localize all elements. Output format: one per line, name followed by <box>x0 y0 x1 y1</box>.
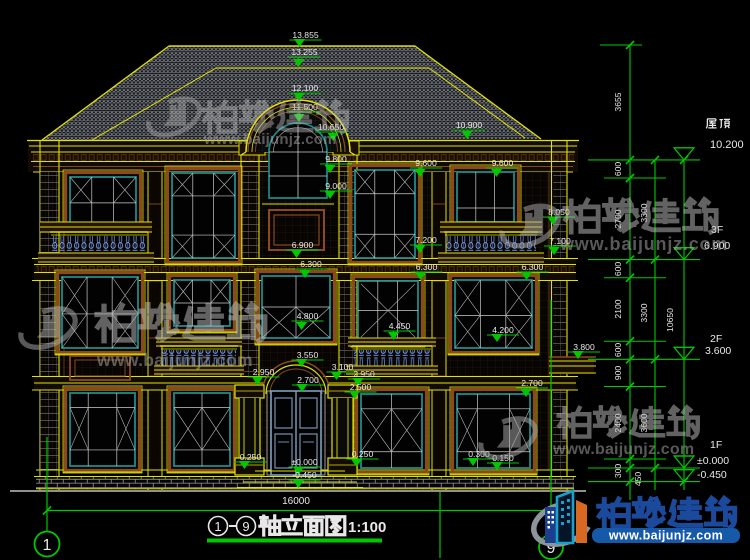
svg-text:3300: 3300 <box>639 303 649 322</box>
svg-text:2100: 2100 <box>613 299 623 318</box>
svg-text:0.250: 0.250 <box>240 452 262 462</box>
svg-text:2.700: 2.700 <box>521 378 543 388</box>
svg-text:1: 1 <box>43 537 52 554</box>
svg-text:4.200: 4.200 <box>492 325 514 335</box>
svg-text:3.100: 3.100 <box>332 362 354 372</box>
svg-text:13.855: 13.855 <box>292 30 319 40</box>
svg-text:600: 600 <box>613 343 623 358</box>
svg-text:9.600: 9.600 <box>492 158 514 168</box>
svg-text:12.100: 12.100 <box>292 83 319 93</box>
svg-text:1: 1 <box>214 519 221 534</box>
svg-text:6.300: 6.300 <box>522 262 544 272</box>
svg-text:www.baijunjz.com: www.baijunjz.com <box>608 529 723 543</box>
svg-text:3655: 3655 <box>613 92 623 111</box>
svg-text:-0.450: -0.450 <box>697 469 727 481</box>
svg-text:7.200: 7.200 <box>415 235 437 245</box>
svg-text:6.300: 6.300 <box>416 262 438 272</box>
svg-text:6.900: 6.900 <box>292 240 314 250</box>
svg-text:2.950: 2.950 <box>353 369 375 379</box>
svg-text:3.600: 3.600 <box>705 345 731 357</box>
svg-text:16000: 16000 <box>282 496 310 507</box>
svg-text:4.800: 4.800 <box>297 311 319 321</box>
svg-text:9: 9 <box>242 519 249 534</box>
svg-text:600: 600 <box>613 262 623 277</box>
svg-text:600: 600 <box>613 162 623 177</box>
svg-text:2F: 2F <box>710 333 722 345</box>
svg-text:www.baijunjz.com: www.baijunjz.com <box>552 441 694 458</box>
svg-text:www.baijunjz.com: www.baijunjz.com <box>96 350 253 370</box>
svg-text:±0.000: ±0.000 <box>697 455 729 467</box>
svg-text:3.550: 3.550 <box>297 350 319 360</box>
svg-text:10.900: 10.900 <box>456 120 483 130</box>
svg-text:9.800: 9.800 <box>325 154 347 164</box>
svg-text:1F: 1F <box>710 439 722 451</box>
svg-text:6.300: 6.300 <box>300 259 322 269</box>
svg-text:3.800: 3.800 <box>573 342 595 352</box>
svg-text:9.000: 9.000 <box>325 181 347 191</box>
svg-text:0.250: 0.250 <box>352 449 374 459</box>
svg-text:450: 450 <box>633 472 643 487</box>
svg-text:300: 300 <box>613 464 623 479</box>
svg-text:www.baijunjz.com: www.baijunjz.com <box>203 131 337 148</box>
svg-text:1:100: 1:100 <box>348 519 386 536</box>
svg-text:-0.450: -0.450 <box>292 470 317 480</box>
svg-text:2.500: 2.500 <box>350 382 372 392</box>
svg-text:2.700: 2.700 <box>297 375 319 385</box>
svg-text:9.600: 9.600 <box>415 158 437 168</box>
svg-text:±0.000: ±0.000 <box>291 457 317 467</box>
svg-text:www.baijunjz.com: www.baijunjz.com <box>559 234 728 254</box>
svg-text:10650: 10650 <box>665 308 675 332</box>
svg-text:2.950: 2.950 <box>253 367 275 377</box>
svg-text:10.200: 10.200 <box>710 139 744 151</box>
svg-text:900: 900 <box>613 366 623 381</box>
svg-text:4.450: 4.450 <box>389 321 411 331</box>
svg-text:13.255: 13.255 <box>291 47 318 57</box>
